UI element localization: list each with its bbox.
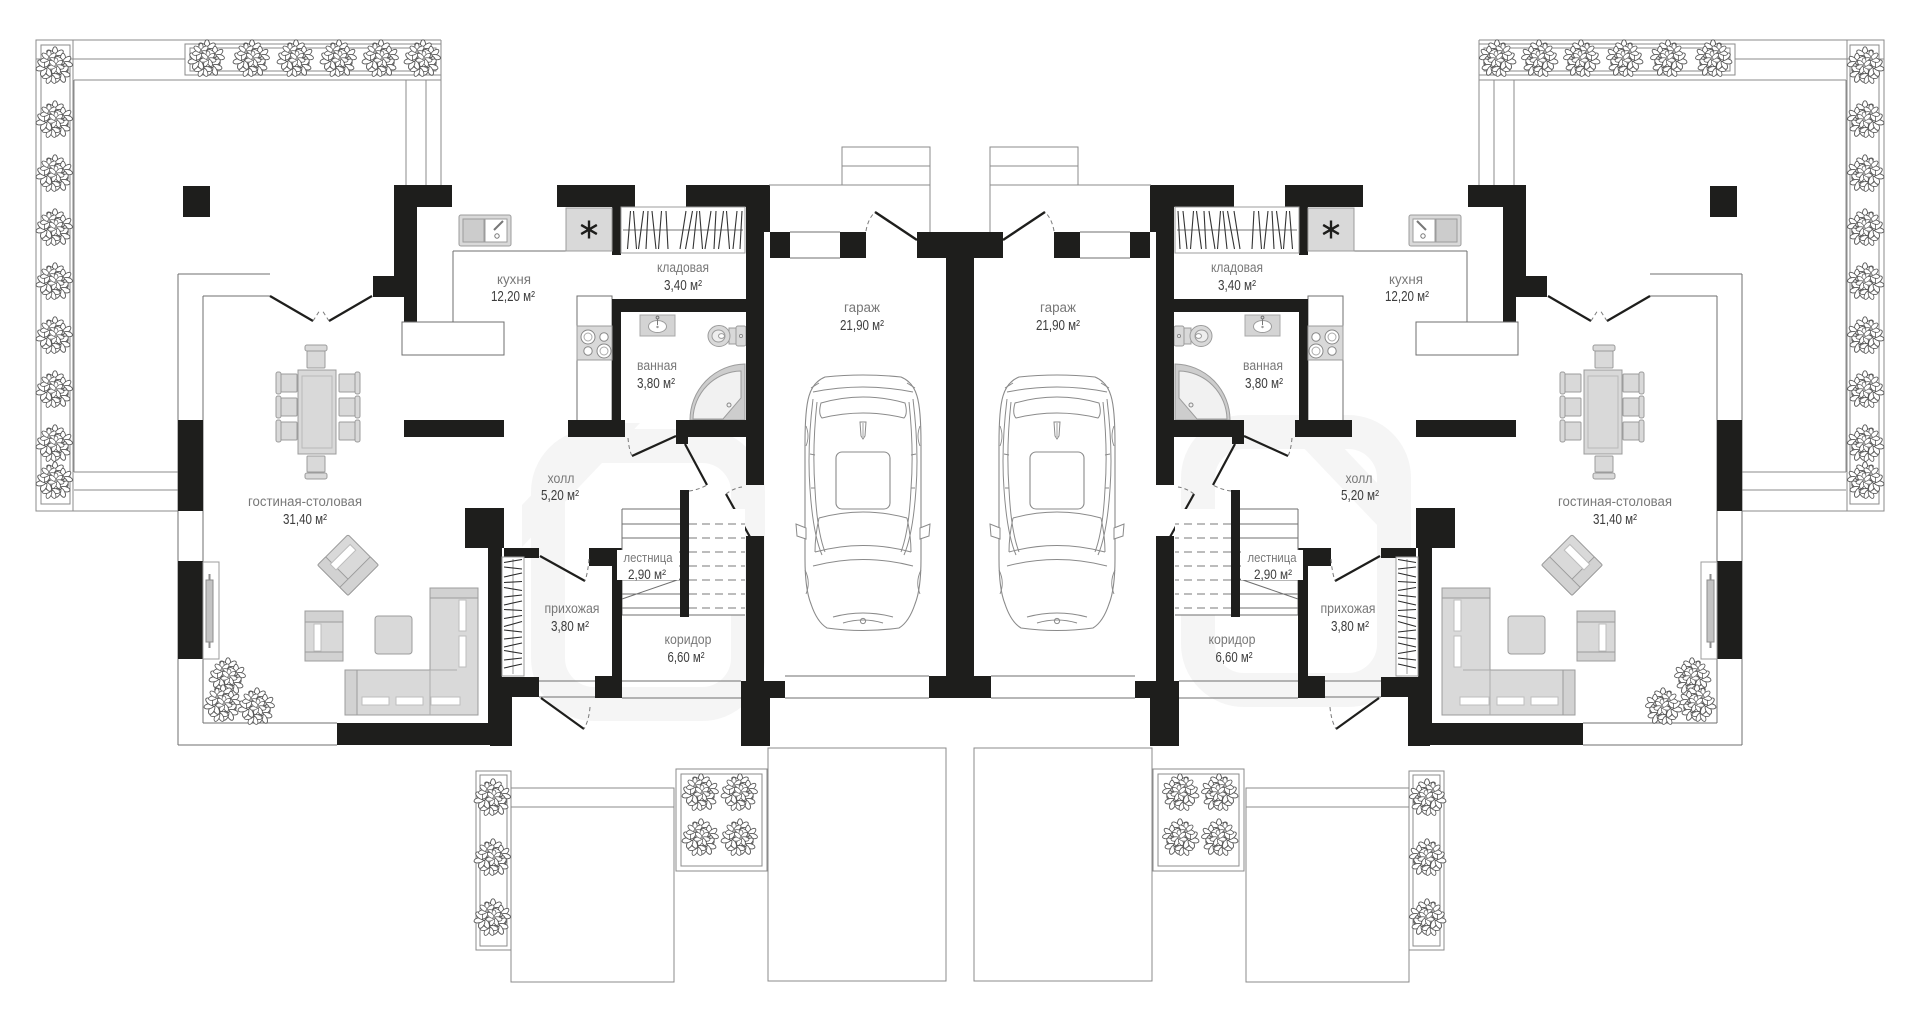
- svg-text:коридор: коридор: [665, 632, 712, 647]
- svg-text:гараж: гараж: [1040, 300, 1076, 315]
- svg-text:кухня: кухня: [497, 272, 531, 287]
- svg-text:кладовая: кладовая: [657, 260, 709, 275]
- svg-text:холл: холл: [548, 471, 575, 486]
- svg-text:гостиная-столовая: гостиная-столовая: [248, 494, 362, 509]
- svg-text:холл: холл: [1346, 471, 1373, 486]
- svg-text:гостиная-столовая: гостиная-столовая: [1558, 494, 1672, 509]
- svg-text:коридор: коридор: [1209, 632, 1256, 647]
- svg-text:гараж: гараж: [844, 300, 880, 315]
- svg-text:прихожая: прихожая: [545, 601, 600, 616]
- svg-text:2,90 м²: 2,90 м²: [628, 566, 666, 582]
- svg-text:кухня: кухня: [1389, 272, 1423, 287]
- svg-text:12,20 м²: 12,20 м²: [491, 289, 535, 305]
- svg-text:3,40 м²: 3,40 м²: [664, 278, 702, 294]
- svg-text:2,90 м²: 2,90 м²: [1254, 566, 1292, 582]
- svg-text:3,80 м²: 3,80 м²: [1331, 619, 1369, 635]
- svg-text:31,40 м²: 31,40 м²: [1593, 512, 1637, 528]
- svg-text:лестница: лестница: [1248, 551, 1297, 565]
- svg-text:лестница: лестница: [624, 551, 673, 565]
- svg-text:6,60 м²: 6,60 м²: [1216, 650, 1253, 666]
- svg-text:3,40 м²: 3,40 м²: [1218, 278, 1256, 294]
- svg-text:3,80 м²: 3,80 м²: [551, 619, 589, 635]
- svg-text:6,60 м²: 6,60 м²: [668, 650, 705, 666]
- svg-text:ванная: ванная: [637, 358, 677, 373]
- svg-text:5,20 м²: 5,20 м²: [1341, 488, 1379, 504]
- svg-text:3,80 м²: 3,80 м²: [637, 376, 675, 392]
- svg-text:21,90 м²: 21,90 м²: [840, 318, 884, 334]
- svg-text:прихожая: прихожая: [1321, 601, 1376, 616]
- svg-text:3,80 м²: 3,80 м²: [1245, 376, 1283, 392]
- svg-text:5,20 м²: 5,20 м²: [541, 488, 579, 504]
- svg-text:кладовая: кладовая: [1211, 260, 1263, 275]
- svg-text:21,90 м²: 21,90 м²: [1036, 318, 1080, 334]
- svg-text:31,40 м²: 31,40 м²: [283, 512, 327, 528]
- svg-text:ванная: ванная: [1243, 358, 1283, 373]
- svg-text:12,20 м²: 12,20 м²: [1385, 289, 1429, 305]
